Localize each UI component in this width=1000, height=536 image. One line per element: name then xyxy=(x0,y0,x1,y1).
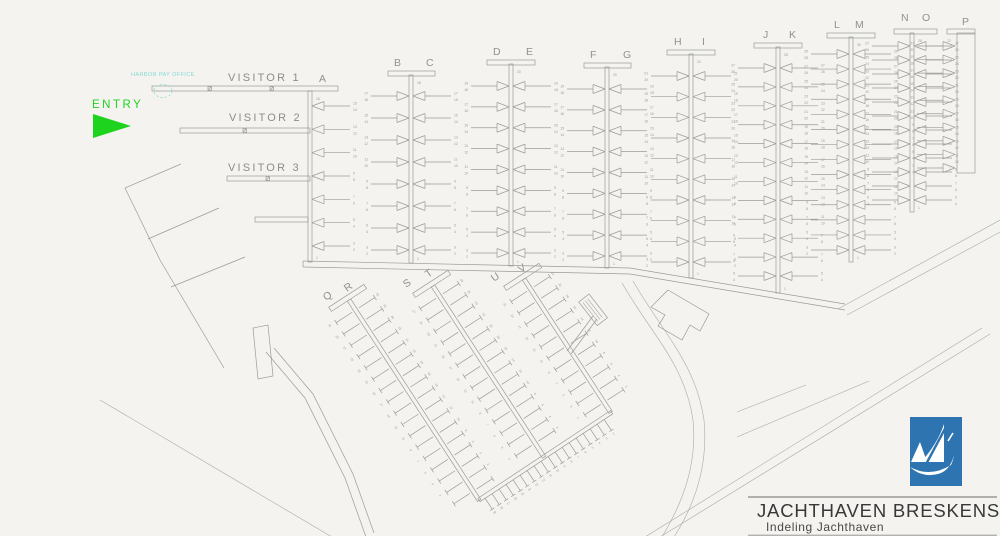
svg-text:6: 6 xyxy=(471,440,475,444)
svg-text:9: 9 xyxy=(409,448,413,452)
svg-text:8: 8 xyxy=(353,178,355,182)
svg-text:9: 9 xyxy=(867,168,869,172)
pier-a: 16115141312111098765432 xyxy=(308,91,357,262)
svg-text:6: 6 xyxy=(562,216,564,220)
svg-text:5: 5 xyxy=(912,150,914,154)
svg-text:28: 28 xyxy=(894,56,898,60)
svg-text:21: 21 xyxy=(644,72,648,76)
svg-text:20: 20 xyxy=(613,73,617,77)
svg-text:12: 12 xyxy=(464,151,468,155)
svg-text:8: 8 xyxy=(464,429,468,433)
svg-text:20: 20 xyxy=(644,78,648,82)
svg-text:3: 3 xyxy=(562,252,564,256)
svg-text:5: 5 xyxy=(554,228,556,232)
svg-text:10: 10 xyxy=(865,160,869,164)
svg-text:18: 18 xyxy=(804,131,808,135)
svg-text:17: 17 xyxy=(454,92,458,96)
svg-text:20: 20 xyxy=(557,282,562,287)
svg-text:23: 23 xyxy=(731,101,735,105)
svg-text:25: 25 xyxy=(865,56,869,60)
svg-text:6: 6 xyxy=(867,188,869,192)
svg-text:27: 27 xyxy=(411,309,416,314)
svg-text:2: 2 xyxy=(806,252,808,256)
svg-text:14: 14 xyxy=(894,162,898,166)
svg-text:17: 17 xyxy=(448,366,453,371)
pier-o-label: O xyxy=(922,12,931,24)
svg-text:13: 13 xyxy=(454,136,458,140)
svg-text:19: 19 xyxy=(644,92,648,96)
svg-text:9: 9 xyxy=(733,234,735,238)
svg-text:14: 14 xyxy=(441,394,446,399)
svg-text:8: 8 xyxy=(602,351,606,355)
svg-text:5: 5 xyxy=(366,224,368,228)
svg-text:15: 15 xyxy=(894,155,898,159)
svg-text:32: 32 xyxy=(375,292,380,297)
svg-text:4: 4 xyxy=(650,237,652,241)
marina-map-canvas: 1611514131211109876543218117161716151415… xyxy=(0,0,1000,536)
pier-p-label: P xyxy=(962,16,970,28)
svg-text:12: 12 xyxy=(449,405,454,410)
marina-map: 1611514131211109876543218117161716151415… xyxy=(0,0,1000,536)
svg-text:28: 28 xyxy=(804,56,808,60)
pier-qr: 3231302928272625242322212019181716151413… xyxy=(319,280,503,518)
svg-text:3: 3 xyxy=(431,482,435,486)
svg-text:7: 7 xyxy=(955,182,957,186)
svg-text:18: 18 xyxy=(644,99,648,103)
svg-text:18: 18 xyxy=(499,505,504,510)
svg-text:13: 13 xyxy=(463,388,468,393)
pier-hi: 2212120212019181918171617161514151413121… xyxy=(644,50,738,278)
svg-text:7: 7 xyxy=(867,182,869,186)
svg-text:2: 2 xyxy=(912,170,914,174)
svg-text:14: 14 xyxy=(364,120,368,124)
svg-text:17: 17 xyxy=(554,102,558,106)
pier-i-label: I xyxy=(702,36,706,48)
svg-text:19: 19 xyxy=(492,510,497,515)
svg-text:21: 21 xyxy=(731,120,735,124)
svg-text:6: 6 xyxy=(821,259,823,263)
svg-text:13: 13 xyxy=(393,425,398,430)
svg-text:28: 28 xyxy=(459,278,464,283)
svg-text:19: 19 xyxy=(821,139,825,143)
svg-text:17: 17 xyxy=(821,158,825,162)
svg-text:26: 26 xyxy=(804,71,808,75)
svg-text:10: 10 xyxy=(525,380,530,385)
slipway xyxy=(579,294,608,326)
svg-text:2: 2 xyxy=(646,264,648,268)
svg-text:5: 5 xyxy=(646,237,648,241)
entry-label: ENTRY xyxy=(92,99,143,111)
svg-text:20: 20 xyxy=(894,116,898,120)
svg-text:7: 7 xyxy=(821,253,823,257)
svg-text:15: 15 xyxy=(554,123,558,127)
svg-text:14: 14 xyxy=(804,162,808,166)
svg-text:12: 12 xyxy=(541,477,546,482)
svg-text:29: 29 xyxy=(335,334,340,339)
svg-text:14: 14 xyxy=(579,316,584,321)
svg-text:27: 27 xyxy=(865,42,869,46)
svg-text:1: 1 xyxy=(507,457,511,461)
svg-text:22: 22 xyxy=(697,60,701,64)
svg-text:1: 1 xyxy=(857,256,859,260)
svg-text:9: 9 xyxy=(806,200,808,204)
svg-text:18: 18 xyxy=(565,294,570,299)
pier-m-label: M xyxy=(855,19,865,31)
svg-text:17: 17 xyxy=(560,105,564,109)
svg-text:3: 3 xyxy=(894,246,896,250)
svg-text:18: 18 xyxy=(554,88,558,92)
svg-text:6: 6 xyxy=(454,208,456,212)
svg-text:2: 2 xyxy=(894,252,896,256)
svg-text:6: 6 xyxy=(733,259,735,263)
svg-text:9: 9 xyxy=(563,464,567,468)
svg-text:26: 26 xyxy=(466,289,471,294)
pier-fg: 2011918191817161716151415141312131211101… xyxy=(560,63,654,268)
svg-text:27: 27 xyxy=(342,346,347,351)
svg-text:18: 18 xyxy=(560,91,564,95)
svg-text:4: 4 xyxy=(548,415,552,419)
svg-text:15: 15 xyxy=(386,414,391,419)
svg-text:8: 8 xyxy=(570,459,574,463)
svg-text:4: 4 xyxy=(617,374,621,378)
svg-text:16: 16 xyxy=(503,346,508,351)
svg-text:14: 14 xyxy=(731,183,735,187)
map-subtitle: Indeling Jachthaven xyxy=(766,520,884,534)
svg-text:16: 16 xyxy=(364,98,368,102)
svg-text:3: 3 xyxy=(569,405,573,409)
pier-v-label: V xyxy=(516,261,529,275)
svg-text:17: 17 xyxy=(644,113,648,117)
svg-text:10: 10 xyxy=(594,339,599,344)
stub-pontoon xyxy=(255,217,308,222)
svg-text:17: 17 xyxy=(804,140,808,144)
svg-text:19: 19 xyxy=(560,85,564,89)
svg-text:6: 6 xyxy=(894,222,896,226)
svg-text:17: 17 xyxy=(379,402,384,407)
svg-text:3: 3 xyxy=(500,446,504,450)
svg-text:11: 11 xyxy=(560,168,564,172)
svg-text:16: 16 xyxy=(554,109,558,113)
svg-text:24: 24 xyxy=(804,86,808,90)
svg-text:13: 13 xyxy=(554,144,558,148)
svg-text:4: 4 xyxy=(733,278,735,282)
svg-text:2: 2 xyxy=(734,264,736,268)
pier-c-label: C xyxy=(426,57,435,69)
svg-text:12: 12 xyxy=(364,142,368,146)
svg-text:6: 6 xyxy=(650,216,652,220)
svg-text:7: 7 xyxy=(353,195,355,199)
svg-text:11: 11 xyxy=(865,154,869,158)
svg-text:20: 20 xyxy=(419,360,424,365)
svg-text:22: 22 xyxy=(865,76,869,80)
svg-text:6: 6 xyxy=(912,143,914,147)
svg-text:2: 2 xyxy=(486,463,490,467)
svg-text:19: 19 xyxy=(650,85,654,89)
svg-text:1: 1 xyxy=(316,256,318,260)
svg-text:26: 26 xyxy=(894,71,898,75)
svg-text:2: 2 xyxy=(562,258,564,262)
svg-text:10: 10 xyxy=(650,175,654,179)
pier-st: 2827262524232221201918171615141312111098… xyxy=(403,266,568,475)
pier-j-label: J xyxy=(763,29,769,41)
svg-text:18: 18 xyxy=(821,146,825,150)
pier-s-label: S xyxy=(401,276,414,290)
svg-text:8: 8 xyxy=(955,174,957,178)
svg-text:5: 5 xyxy=(821,272,823,276)
svg-text:21: 21 xyxy=(364,380,369,385)
svg-text:26: 26 xyxy=(397,326,402,331)
svg-text:7: 7 xyxy=(416,460,420,464)
svg-text:6: 6 xyxy=(353,201,355,205)
svg-text:11: 11 xyxy=(910,109,914,113)
svg-text:4: 4 xyxy=(955,202,957,206)
svg-text:24: 24 xyxy=(821,89,825,93)
svg-text:15: 15 xyxy=(644,134,648,138)
pier-r-label: R xyxy=(342,280,356,295)
svg-text:20: 20 xyxy=(488,323,493,328)
svg-text:4: 4 xyxy=(646,243,648,247)
svg-text:7: 7 xyxy=(646,216,648,220)
svg-text:4: 4 xyxy=(598,441,602,445)
svg-text:10: 10 xyxy=(560,175,564,179)
svg-text:12: 12 xyxy=(865,146,869,150)
pier-d-label: D xyxy=(493,46,502,58)
svg-text:23: 23 xyxy=(865,70,869,74)
pier-p: 22121201918171615141312111098765432 xyxy=(910,29,975,174)
title-block: JACHTHAVEN BRESKENS Indeling Jachthaven xyxy=(748,417,1000,535)
svg-text:14: 14 xyxy=(560,133,564,137)
svg-text:16: 16 xyxy=(316,97,320,101)
svg-text:14: 14 xyxy=(910,89,914,93)
svg-text:7: 7 xyxy=(806,215,808,219)
svg-text:6: 6 xyxy=(366,208,368,212)
svg-text:17: 17 xyxy=(734,113,738,117)
berth-piers: 1611514131211109876543218117161716151415… xyxy=(308,29,975,518)
svg-text:16: 16 xyxy=(865,118,869,122)
svg-text:15: 15 xyxy=(731,177,735,181)
svg-text:8: 8 xyxy=(646,202,648,206)
svg-text:4: 4 xyxy=(821,278,823,282)
svg-text:6: 6 xyxy=(955,188,957,192)
pier-n-label: N xyxy=(901,12,910,24)
svg-text:10: 10 xyxy=(353,155,357,159)
svg-text:10: 10 xyxy=(644,181,648,185)
svg-text:9: 9 xyxy=(562,189,564,193)
pier-uv: 22212019181716151413121110987654321 xyxy=(494,259,634,430)
northeast-road xyxy=(838,219,1000,315)
svg-text:9: 9 xyxy=(912,123,914,127)
svg-text:12: 12 xyxy=(560,154,564,158)
svg-text:10: 10 xyxy=(894,192,898,196)
svg-text:6: 6 xyxy=(609,362,613,366)
svg-text:1: 1 xyxy=(438,494,442,498)
svg-text:16: 16 xyxy=(910,75,914,79)
svg-text:13: 13 xyxy=(731,196,735,200)
svg-text:18: 18 xyxy=(910,62,914,66)
svg-text:8: 8 xyxy=(554,192,556,196)
svg-text:18: 18 xyxy=(650,91,654,95)
svg-text:7: 7 xyxy=(894,215,896,219)
svg-text:18: 18 xyxy=(427,371,432,376)
pier-f-label: F xyxy=(590,49,597,61)
visitor-3-label: VISITOR 3 xyxy=(228,162,301,174)
svg-text:14: 14 xyxy=(464,130,468,134)
shoreline-southwest xyxy=(100,400,332,536)
svg-text:15: 15 xyxy=(455,377,460,382)
svg-text:6: 6 xyxy=(584,450,588,454)
svg-text:7: 7 xyxy=(454,202,456,206)
entry-arrow-icon xyxy=(93,114,131,138)
svg-text:5: 5 xyxy=(353,218,355,222)
svg-text:15: 15 xyxy=(524,336,529,341)
svg-text:25: 25 xyxy=(419,320,424,325)
svg-text:5: 5 xyxy=(955,196,957,200)
promontory-road xyxy=(622,281,705,536)
svg-text:8: 8 xyxy=(733,240,735,244)
svg-text:4: 4 xyxy=(478,451,482,455)
svg-text:20: 20 xyxy=(821,127,825,131)
svg-text:19: 19 xyxy=(804,125,808,129)
svg-text:1: 1 xyxy=(576,416,580,420)
svg-text:21: 21 xyxy=(821,120,825,124)
svg-text:5: 5 xyxy=(466,228,468,232)
entry-marker: ENTRY xyxy=(92,99,143,138)
svg-text:13: 13 xyxy=(464,144,468,148)
svg-text:3: 3 xyxy=(806,246,808,250)
svg-text:7: 7 xyxy=(366,202,368,206)
svg-text:9: 9 xyxy=(554,186,556,190)
visitor-2-label: VISITOR 2 xyxy=(229,112,302,124)
svg-text:13: 13 xyxy=(560,147,564,151)
svg-text:22: 22 xyxy=(804,101,808,105)
pier-l-label: L xyxy=(834,19,841,31)
svg-text:4: 4 xyxy=(353,225,355,229)
svg-text:12: 12 xyxy=(554,151,558,155)
svg-text:1: 1 xyxy=(613,262,615,266)
svg-text:3: 3 xyxy=(366,246,368,250)
south-breakwater xyxy=(253,325,374,536)
svg-text:25: 25 xyxy=(731,82,735,86)
svg-text:7: 7 xyxy=(912,136,914,140)
svg-text:20: 20 xyxy=(804,116,808,120)
pier-bc: 1811716171615141514131213121110111098987… xyxy=(364,71,458,263)
svg-text:2: 2 xyxy=(454,252,456,256)
svg-text:3: 3 xyxy=(554,249,556,253)
svg-text:19: 19 xyxy=(371,391,376,396)
svg-text:5: 5 xyxy=(562,231,564,235)
svg-text:26: 26 xyxy=(865,48,869,52)
svg-text:16: 16 xyxy=(513,496,518,501)
svg-text:15: 15 xyxy=(464,123,468,127)
main-walkway xyxy=(303,261,845,310)
pier-q-label: Q xyxy=(321,288,335,303)
svg-text:9: 9 xyxy=(894,200,896,204)
svg-text:7: 7 xyxy=(562,210,564,214)
svg-text:9: 9 xyxy=(466,186,468,190)
svg-text:12: 12 xyxy=(804,177,808,181)
svg-text:5: 5 xyxy=(867,196,869,200)
svg-text:19: 19 xyxy=(554,82,558,86)
svg-text:4: 4 xyxy=(867,202,869,206)
map-title: JACHTHAVEN BRESKENS xyxy=(757,500,1000,521)
svg-text:19: 19 xyxy=(464,82,468,86)
svg-text:8: 8 xyxy=(454,186,456,190)
svg-text:14: 14 xyxy=(511,357,516,362)
svg-text:16: 16 xyxy=(464,109,468,113)
svg-text:15: 15 xyxy=(364,114,368,118)
svg-text:17: 17 xyxy=(865,112,869,116)
svg-text:10: 10 xyxy=(555,468,560,473)
svg-text:16: 16 xyxy=(560,112,564,116)
pier-t-label: T xyxy=(423,266,436,280)
svg-text:11: 11 xyxy=(470,400,475,405)
svg-text:19: 19 xyxy=(910,55,914,59)
svg-text:30: 30 xyxy=(382,303,387,308)
svg-text:7: 7 xyxy=(554,382,558,386)
svg-text:28: 28 xyxy=(918,39,922,43)
svg-text:4: 4 xyxy=(806,237,808,241)
svg-text:7: 7 xyxy=(554,207,556,211)
svg-text:14: 14 xyxy=(454,120,458,124)
svg-text:21: 21 xyxy=(433,343,438,348)
svg-text:15: 15 xyxy=(910,82,914,86)
svg-text:1: 1 xyxy=(417,257,419,261)
svg-text:5: 5 xyxy=(733,272,735,276)
svg-text:3: 3 xyxy=(650,252,652,256)
svg-text:19: 19 xyxy=(865,98,869,102)
pier-e-label: E xyxy=(526,46,534,58)
visitor-pontoons xyxy=(152,86,338,222)
svg-text:22: 22 xyxy=(947,39,951,43)
svg-text:13: 13 xyxy=(353,125,357,129)
svg-text:29: 29 xyxy=(894,50,898,54)
svg-text:5: 5 xyxy=(493,434,497,438)
svg-text:7: 7 xyxy=(733,253,735,257)
svg-text:19: 19 xyxy=(731,139,735,143)
svg-text:21: 21 xyxy=(804,110,808,114)
svg-text:14: 14 xyxy=(865,132,869,136)
svg-text:7: 7 xyxy=(485,423,489,427)
svg-text:9: 9 xyxy=(547,371,551,375)
svg-text:20: 20 xyxy=(517,70,521,74)
svg-text:11: 11 xyxy=(650,168,654,172)
svg-text:23: 23 xyxy=(804,95,808,99)
svg-text:10: 10 xyxy=(364,164,368,168)
svg-text:24: 24 xyxy=(731,89,735,93)
svg-text:9: 9 xyxy=(650,189,652,193)
visitor-1-label: VISITOR 1 xyxy=(228,72,301,84)
svg-text:15: 15 xyxy=(650,126,654,130)
svg-text:6: 6 xyxy=(540,403,544,407)
svg-text:16: 16 xyxy=(804,146,808,150)
svg-text:22: 22 xyxy=(550,271,555,276)
svg-text:11: 11 xyxy=(731,215,735,219)
svg-text:2: 2 xyxy=(366,252,368,256)
svg-text:10: 10 xyxy=(454,164,458,168)
svg-text:15: 15 xyxy=(734,134,738,138)
svg-text:13: 13 xyxy=(532,347,537,352)
svg-text:27: 27 xyxy=(821,64,825,68)
svg-text:12: 12 xyxy=(454,142,458,146)
svg-text:4: 4 xyxy=(912,156,914,160)
svg-text:15: 15 xyxy=(821,177,825,181)
svg-text:16: 16 xyxy=(650,112,654,116)
svg-text:24: 24 xyxy=(865,62,869,66)
svg-text:19: 19 xyxy=(894,125,898,129)
svg-text:14: 14 xyxy=(821,183,825,187)
svg-text:20: 20 xyxy=(865,90,869,94)
pier-lm: 3012928292827262726252425242322232221202… xyxy=(804,33,898,262)
